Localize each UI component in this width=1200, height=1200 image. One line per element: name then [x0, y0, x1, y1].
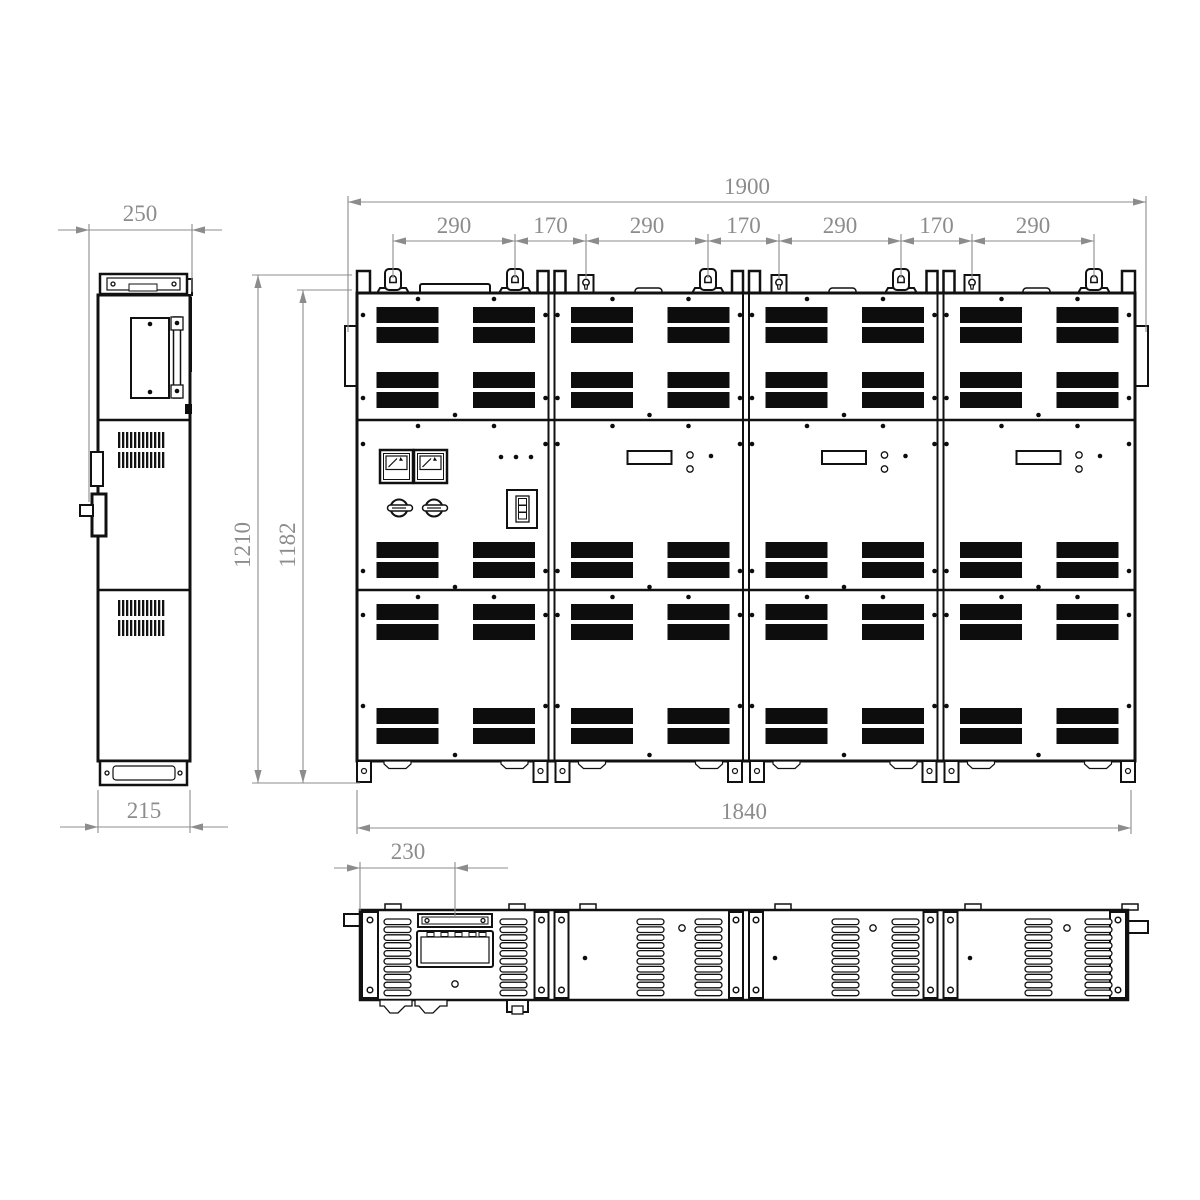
dim-215-label: 215 [127, 798, 162, 823]
indicator-led [499, 455, 504, 460]
junction-post-pair [927, 271, 955, 295]
front-body-outline [357, 293, 1135, 761]
indicator-led [529, 455, 534, 460]
top-view [344, 904, 1148, 1014]
analog-meter-left [380, 450, 413, 483]
dim-chain: 290 170 290 170 290 170 290 [393, 213, 1094, 278]
dim-chain-label-4: 290 [823, 213, 858, 238]
bottom-cable-tab [380, 1000, 412, 1013]
dim-base-width: 1840 [357, 790, 1131, 834]
dim-230-label: 230 [391, 839, 426, 864]
drawing-page: 1900 290 170 290 170 290 170 290 250 121… [0, 0, 1200, 1200]
breaker-panel[interactable] [507, 490, 537, 528]
dim-chain-label-5: 170 [919, 213, 954, 238]
side-top-cap [100, 274, 187, 294]
dim-chain-label-2: 290 [630, 213, 665, 238]
dim-depth-bottom: 215 [60, 790, 228, 833]
top-view-left-tab [344, 914, 361, 926]
terminal-box [417, 931, 493, 967]
dim-top-view-offset: 230 [334, 839, 508, 916]
dim-chain-label-0: 290 [437, 213, 472, 238]
indicator-led [514, 455, 519, 460]
screw [679, 925, 685, 931]
mounting-foot [357, 761, 371, 782]
dim-chain-label-6: 290 [1016, 213, 1051, 238]
side-view [80, 274, 192, 785]
corner-post-right [1122, 271, 1135, 295]
front-base [357, 761, 1135, 782]
dim-body-height: 1182 [275, 290, 352, 783]
front-top-rail [357, 269, 1135, 295]
dim-1840-label: 1840 [721, 799, 767, 824]
mounting-foot-pair [923, 761, 959, 782]
dim-1900-label: 1900 [724, 174, 770, 199]
side-door-window [131, 318, 169, 398]
front-view [345, 269, 1148, 782]
top-view-rail-left [362, 912, 378, 998]
corner-post-left [357, 271, 370, 295]
mounting-foot-pair [728, 761, 764, 782]
dim-250-label: 250 [123, 201, 158, 226]
dim-1182-label: 1182 [275, 522, 300, 567]
junction-post-pair [732, 271, 760, 295]
hinge-bracket-upper [91, 452, 103, 486]
side-bottom-cap [100, 761, 187, 785]
dim-chain-label-3: 170 [726, 213, 761, 238]
bottom-cable-tab [415, 1000, 447, 1013]
side-door-latch [185, 404, 192, 414]
screw [1064, 925, 1070, 931]
dim-1210-label: 1210 [230, 522, 255, 568]
mounting-foot-pair [534, 761, 570, 782]
hinge-bracket-tab [80, 505, 93, 516]
junction-post-pair [538, 271, 566, 295]
hinge-bracket-lower [92, 494, 106, 536]
screw [870, 925, 876, 931]
dim-chain-label-1: 170 [533, 213, 568, 238]
top-view-right-tab [1127, 921, 1148, 933]
mounting-foot [1121, 761, 1135, 782]
technical-drawing: 1900 290 170 290 170 290 170 290 250 121… [0, 0, 1200, 1200]
analog-meter-right [414, 450, 447, 483]
bottom-plug-tab [507, 1000, 528, 1014]
screw [452, 981, 458, 987]
side-door-handle[interactable] [171, 317, 183, 398]
